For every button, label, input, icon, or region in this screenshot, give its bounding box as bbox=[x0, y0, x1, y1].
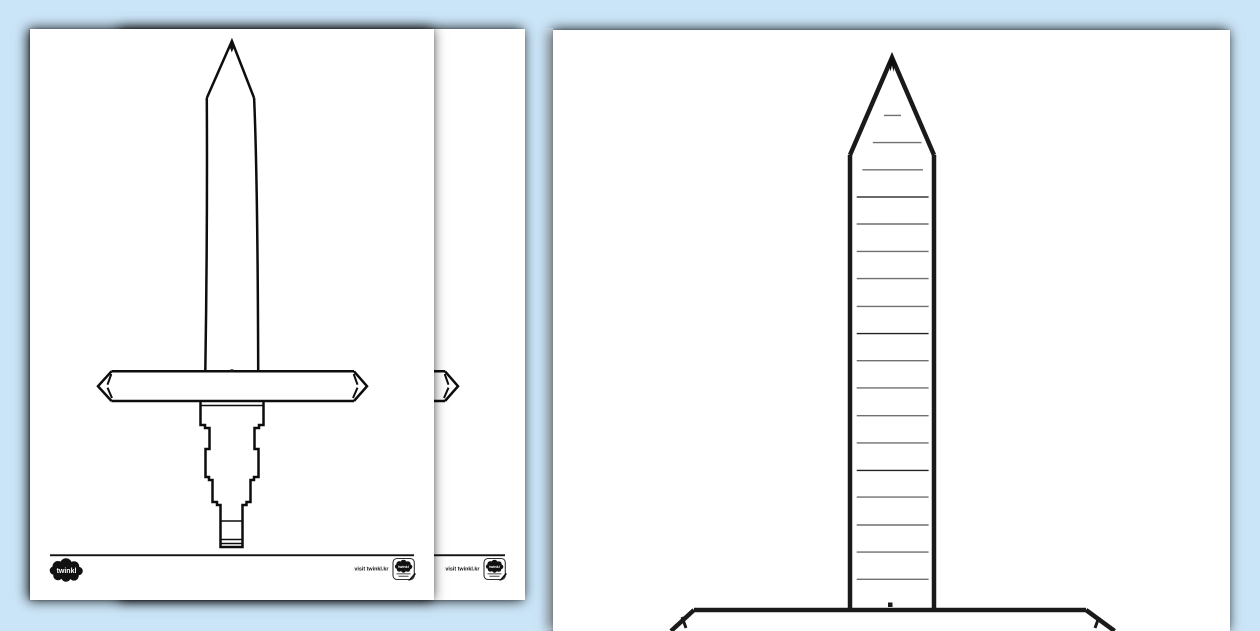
svg-text:visit twinkl.kr: visit twinkl.kr bbox=[445, 567, 480, 573]
svg-text:twinkl: twinkl bbox=[489, 565, 499, 569]
svg-text:visit twinkl.kr: visit twinkl.kr bbox=[354, 567, 389, 573]
svg-text:twinkl: twinkl bbox=[398, 565, 408, 569]
svg-text:twinkl: twinkl bbox=[56, 568, 76, 575]
